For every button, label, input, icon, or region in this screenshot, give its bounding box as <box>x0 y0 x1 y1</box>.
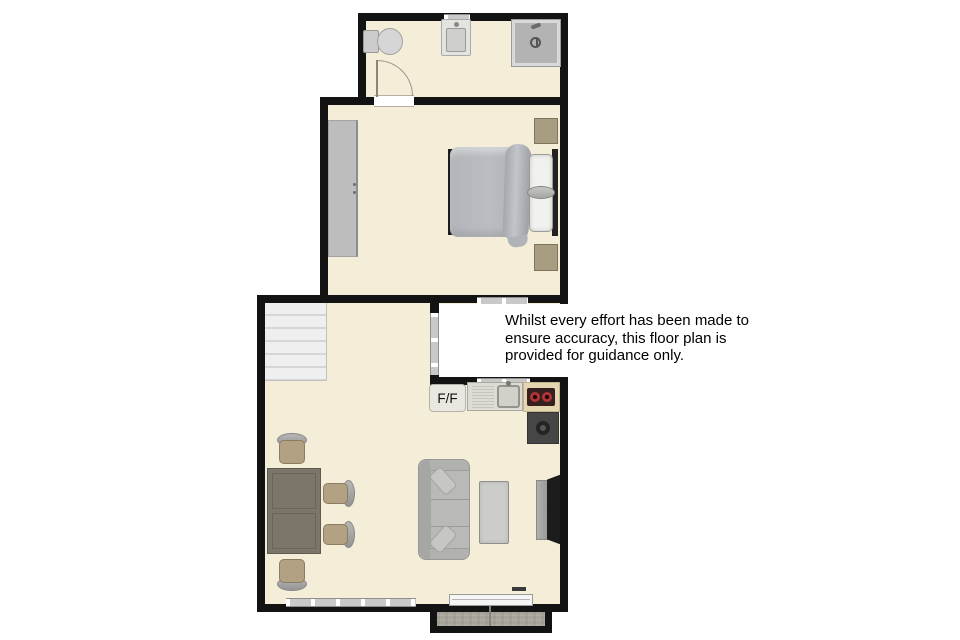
shower-icon <box>512 20 560 66</box>
kitchen-sink-unit <box>467 382 523 411</box>
appliance-dial-icon <box>536 421 550 435</box>
coffee-table <box>479 481 509 544</box>
sink-basin <box>446 28 466 52</box>
oven-appliance <box>527 412 559 444</box>
living-front-window <box>286 598 416 607</box>
shower-head-icon <box>531 22 542 29</box>
dining-chair-south <box>279 559 305 583</box>
nightstand-top <box>534 118 558 144</box>
disclaimer-line: Whilst every effort has been made to <box>505 312 785 330</box>
dining-chair-east-2 <box>323 524 348 545</box>
table-panel <box>272 513 316 549</box>
hob-burner-icon <box>530 392 540 402</box>
bed-bolster <box>527 186 555 199</box>
bathroom-sink-icon <box>441 19 471 56</box>
wardrobe-handle <box>353 183 356 186</box>
bathroom-door-threshold <box>374 95 414 107</box>
door-handle-mark <box>512 587 526 591</box>
sofa-cushion-line <box>431 499 469 500</box>
porch-divider <box>489 605 491 626</box>
sink-faucet-icon <box>454 22 459 27</box>
stairs <box>265 303 327 381</box>
tv-screen-icon <box>547 474 560 545</box>
bay-side-window <box>430 313 439 375</box>
dining-chair-east-1 <box>323 483 348 504</box>
dining-chair-north <box>279 440 305 464</box>
kitchen-sink-basin <box>497 385 520 408</box>
shower-drain-slot <box>536 39 538 47</box>
disclaimer-line: provided for guidance only. <box>505 347 785 365</box>
hob-burner-icon <box>542 392 552 402</box>
disclaimer-text: Whilst every effort has been made to ens… <box>505 312 785 365</box>
sofa <box>418 459 470 560</box>
door-leaf-icon <box>376 60 378 97</box>
patio-door-rail <box>452 599 530 600</box>
nightstand-bottom <box>534 244 558 271</box>
patio-door <box>449 594 533 606</box>
table-panel <box>272 473 316 509</box>
wardrobe <box>328 120 358 257</box>
hob-icon <box>527 388 555 406</box>
toilet-bowl-icon <box>377 28 403 55</box>
hob-counter <box>523 382 560 412</box>
fridge-freezer-label: F/F <box>437 391 457 406</box>
floor-plan: F/F Whilst every effort has been made to… <box>0 0 960 640</box>
kitchen-faucet-icon <box>506 381 511 386</box>
wardrobe-handle <box>353 191 356 194</box>
disclaimer-line: ensure accuracy, this floor plan is <box>505 330 785 348</box>
fridge-freezer: F/F <box>429 384 466 412</box>
drainer-icon <box>472 386 494 408</box>
bed <box>448 144 558 241</box>
dining-table <box>267 468 321 554</box>
